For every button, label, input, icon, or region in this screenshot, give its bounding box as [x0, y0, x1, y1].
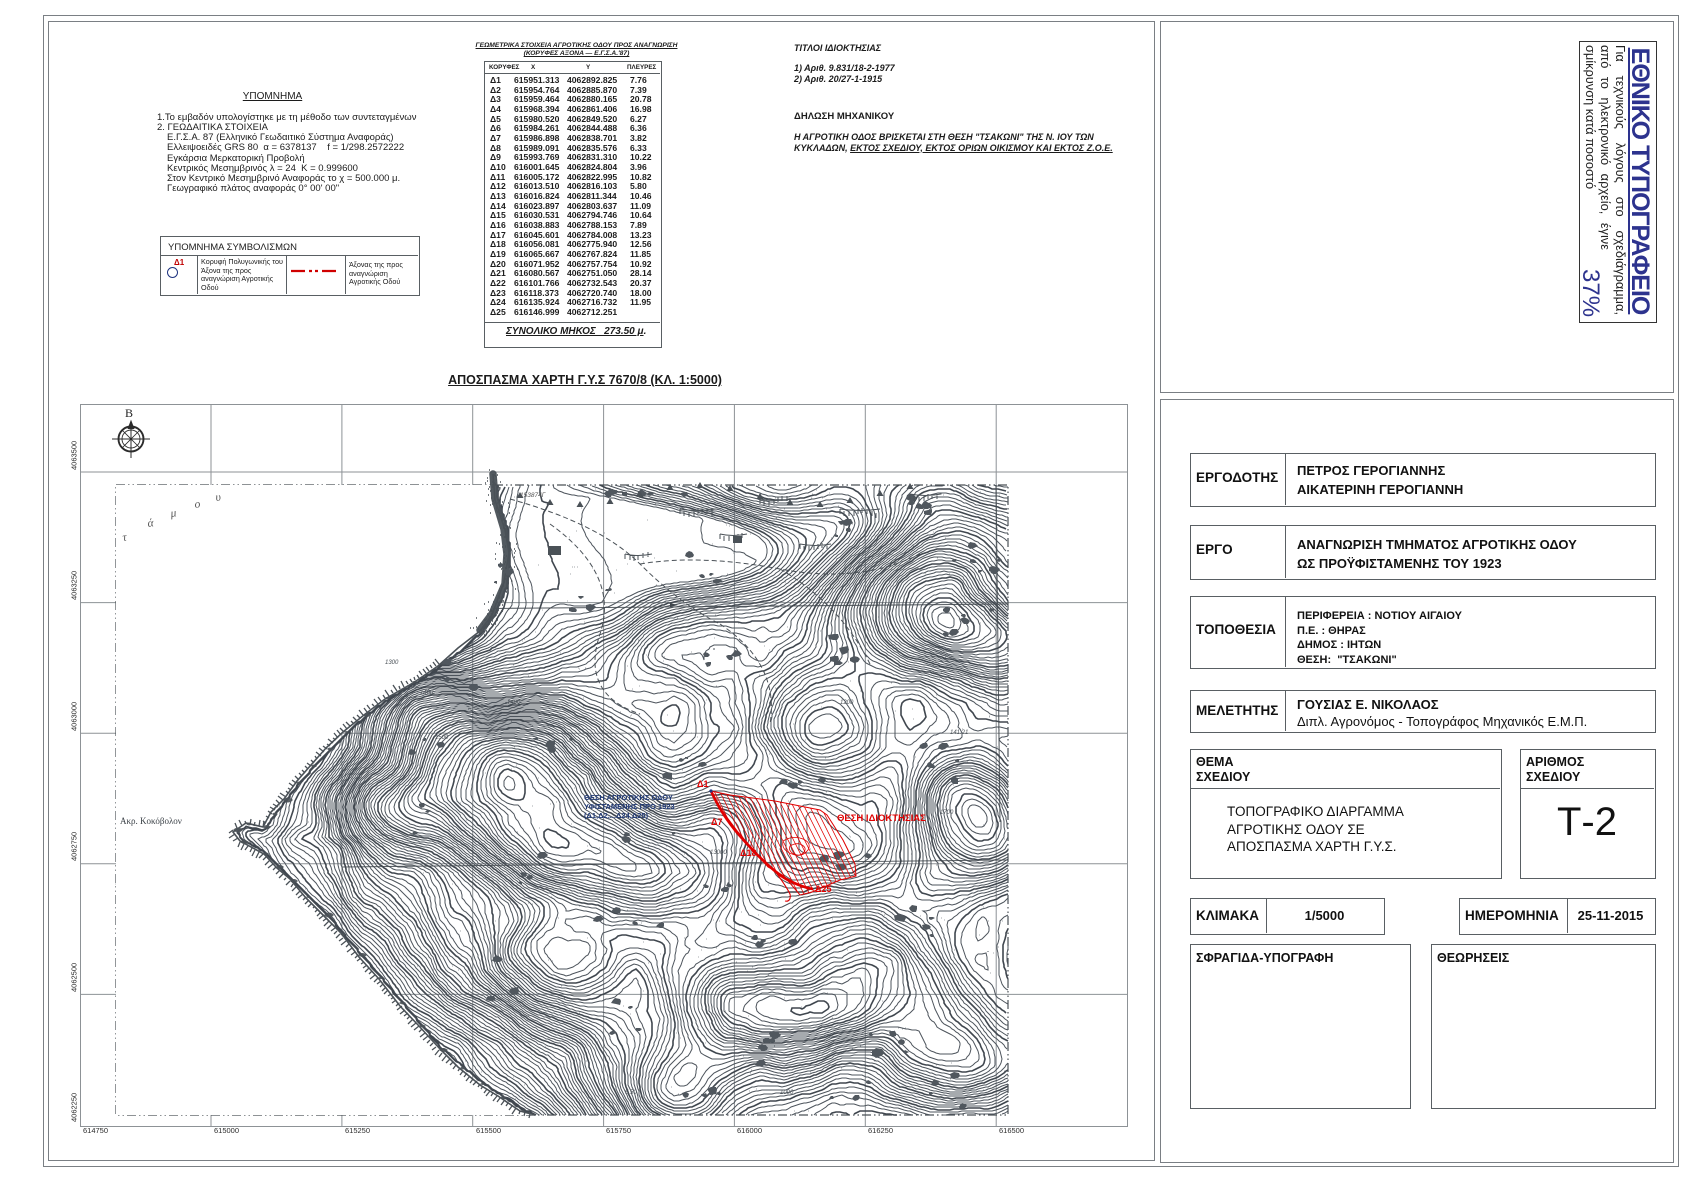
svg-text:5.50: 5.50 — [625, 1090, 637, 1096]
svg-text:ΘΕΣΗ ΙΔΙΟΚΤΗΣΙΑΣ: ΘΕΣΗ ΙΔΙΟΚΤΗΣΙΑΣ — [837, 813, 926, 824]
svg-text:141.21: 141.21 — [950, 730, 968, 736]
svg-text:1300: 1300 — [385, 660, 399, 666]
svg-text:Δ25: Δ25 — [815, 884, 831, 894]
svg-text:153874Γ: 153874Γ — [520, 492, 546, 499]
svg-text:Δ1: Δ1 — [697, 779, 708, 789]
svg-text:615750: 615750 — [606, 1126, 631, 1135]
svg-text:4062250: 4062250 — [70, 1093, 79, 1122]
svg-text:616500: 616500 — [999, 1126, 1024, 1135]
svg-text:1200: 1200 — [840, 700, 854, 706]
svg-text:Δ7: Δ7 — [711, 817, 722, 827]
svg-text:Ακρ. Κοκόβολον: Ακρ. Κοκόβολον — [120, 816, 182, 826]
svg-text:1000: 1000 — [780, 1090, 794, 1096]
svg-text:615500: 615500 — [476, 1126, 501, 1135]
svg-text:616000: 616000 — [737, 1126, 762, 1135]
svg-text:616250: 616250 — [868, 1126, 893, 1135]
svg-text:615000: 615000 — [214, 1126, 239, 1135]
svg-text:Δ18: Δ18 — [740, 848, 756, 858]
svg-text:(Δ1,Δ2,...Δ24,Δ25): (Δ1,Δ2,...Δ24,Δ25) — [584, 811, 649, 820]
svg-text:4063000: 4063000 — [70, 702, 79, 731]
svg-text:1500: 1500 — [435, 735, 449, 741]
svg-text:615250: 615250 — [345, 1126, 370, 1135]
svg-text:4063500: 4063500 — [70, 441, 79, 470]
svg-text:1400: 1400 — [420, 690, 434, 696]
svg-text:ΥΦΙΣΤΑΜΕΝΗΣ ΠΡΟ 1923: ΥΦΙΣΤΑΜΕΝΗΣ ΠΡΟ 1923 — [584, 802, 675, 811]
svg-text:B: B — [125, 406, 133, 420]
svg-text:ΘΕΣΗ ΑΓΡΟΤΙΚΗΣ ΟΔΟΥ: ΘΕΣΗ ΑΓΡΟΤΙΚΗΣ ΟΔΟΥ — [584, 793, 673, 802]
svg-text:1700: 1700 — [940, 810, 954, 816]
svg-text:4063250: 4063250 — [70, 571, 79, 600]
svg-text:-1400-: -1400- — [505, 700, 522, 706]
svg-text:614750: 614750 — [83, 1126, 108, 1135]
svg-text:4062750: 4062750 — [70, 832, 79, 861]
svg-text:4062500: 4062500 — [70, 963, 79, 992]
svg-text:13000: 13000 — [710, 850, 727, 856]
